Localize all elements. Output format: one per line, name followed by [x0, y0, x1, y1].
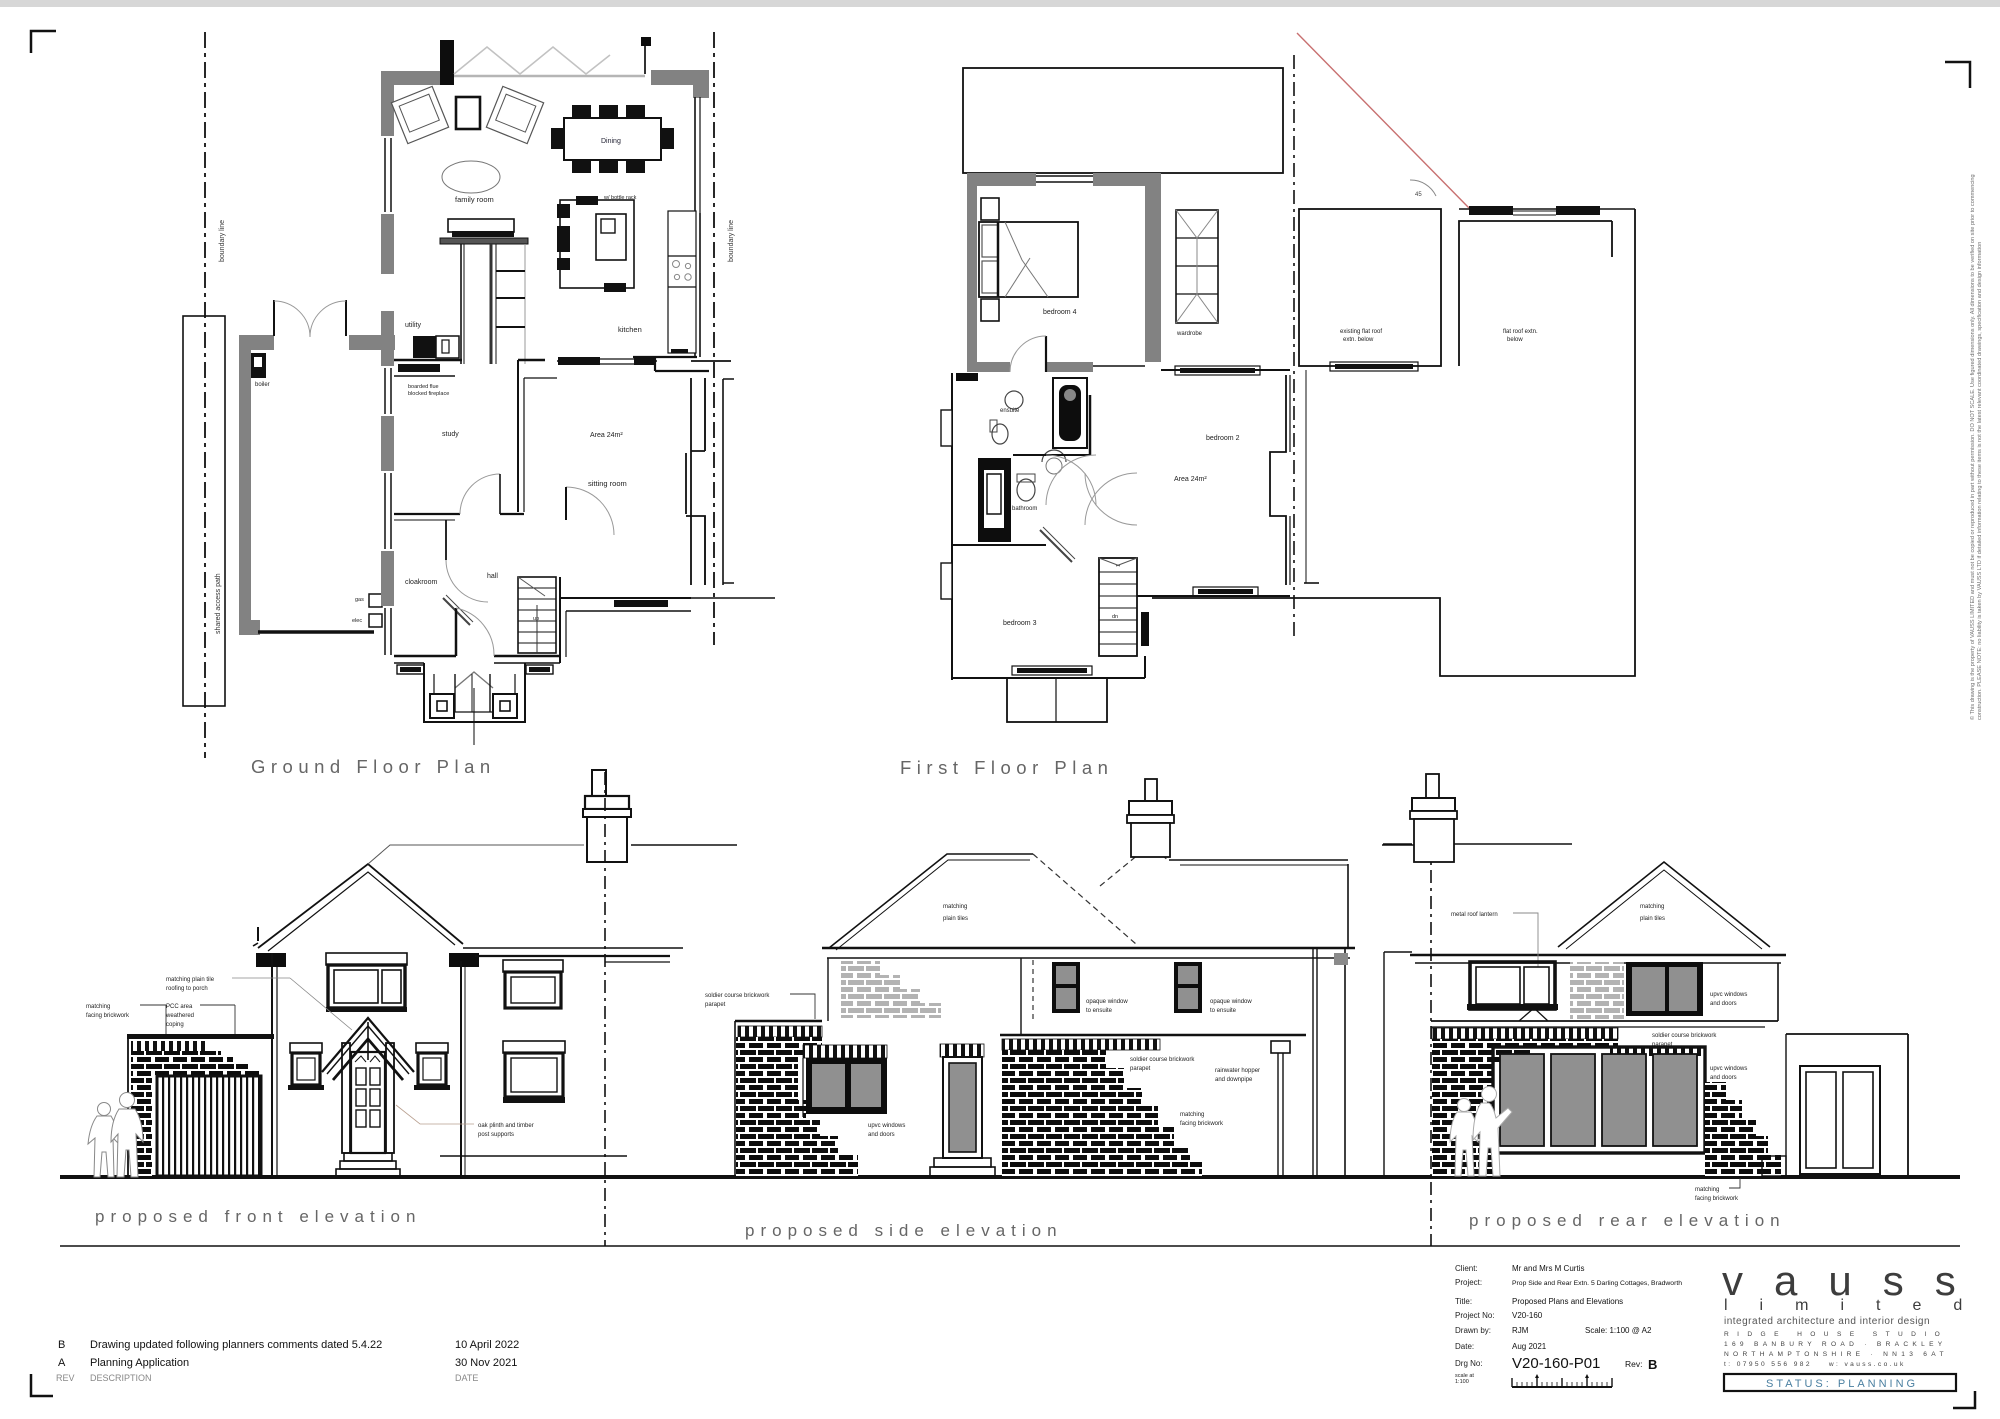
- svg-text:and doors: and doors: [1710, 1075, 1737, 1081]
- svg-text:upvc windows: upvc windows: [868, 1123, 905, 1129]
- svg-text:metal roof lantern: metal roof lantern: [1451, 912, 1498, 918]
- svg-text:matching: matching: [1695, 1187, 1719, 1193]
- svg-text:rainwater hopper: rainwater hopper: [1215, 1068, 1260, 1074]
- svg-text:opaque window: opaque window: [1086, 999, 1128, 1005]
- svg-text:and doors: and doors: [868, 1132, 895, 1138]
- svg-text:plain tiles: plain tiles: [943, 916, 968, 922]
- svg-text:roofing to porch: roofing to porch: [166, 986, 208, 992]
- svg-text:matching plain tile: matching plain tile: [166, 977, 215, 983]
- svg-text:A: A: [58, 1357, 66, 1369]
- svg-text:matching: matching: [943, 904, 967, 910]
- svg-text:hall: hall: [487, 573, 498, 580]
- svg-text:construction. PLEASE NOTE: no: construction. PLEASE NOTE: no liability …: [1977, 242, 1983, 720]
- svg-text:soldier course brickwork: soldier course brickwork: [1130, 1057, 1195, 1063]
- svg-text:Drawing updated following plan: Drawing updated following planners comme…: [90, 1339, 382, 1351]
- svg-text:proposed side elevation: proposed side elevation: [745, 1221, 1063, 1240]
- svg-text:shared access path: shared access path: [215, 573, 222, 634]
- svg-text:parapet: parapet: [1130, 1066, 1151, 1072]
- svg-text:Dining: Dining: [601, 138, 621, 145]
- svg-text:t: 07950 556 982 w: vauss.c: t: 07950 556 982 w: vauss.co.uk: [1724, 1361, 1906, 1368]
- svg-text:limited: limited: [1724, 1297, 1994, 1314]
- svg-text:Project:: Project:: [1455, 1278, 1482, 1287]
- svg-text:below: below: [1507, 337, 1523, 343]
- svg-text:soldier course brickwork: soldier course brickwork: [1652, 1033, 1717, 1039]
- svg-text:to ensuite: to ensuite: [1210, 1008, 1237, 1014]
- svg-text:w/ bottle rack: w/ bottle rack: [603, 195, 637, 201]
- svg-text:family room: family room: [455, 195, 494, 204]
- svg-text:Rev:: Rev:: [1625, 1359, 1642, 1369]
- svg-text:dn: dn: [1112, 614, 1118, 620]
- svg-text:REV: REV: [56, 1373, 75, 1383]
- svg-text:bedroom 3: bedroom 3: [1003, 620, 1037, 627]
- svg-text:Prop Side and Rear Extn. 5 Dar: Prop Side and Rear Extn. 5 Darling Cotta…: [1512, 1280, 1682, 1287]
- svg-text:B: B: [1648, 1357, 1657, 1372]
- svg-text:oak plinth and timber: oak plinth and timber: [478, 1123, 534, 1129]
- svg-text:B: B: [58, 1339, 65, 1351]
- svg-text:up: up: [533, 616, 539, 622]
- svg-text:ensuite: ensuite: [1000, 408, 1020, 414]
- svg-text:Mr and Mrs M Curtis: Mr and Mrs M Curtis: [1512, 1264, 1584, 1273]
- svg-text:boiler: boiler: [255, 382, 270, 388]
- svg-text:NORTHAMPTONSHIRE · NN13 6AT: NORTHAMPTONSHIRE · NN13 6AT: [1724, 1351, 1948, 1358]
- svg-text:bathroom: bathroom: [1012, 506, 1037, 512]
- svg-text:STATUS: PLANNING: STATUS: PLANNING: [1766, 1378, 1918, 1390]
- svg-text:proposed front elevation: proposed front elevation: [95, 1207, 421, 1226]
- svg-text:Drg No:: Drg No:: [1455, 1359, 1483, 1368]
- svg-text:and downpipe: and downpipe: [1215, 1077, 1253, 1083]
- svg-text:facing brickwork: facing brickwork: [1180, 1121, 1224, 1127]
- svg-text:30 Nov 2021: 30 Nov 2021: [455, 1357, 517, 1369]
- svg-text:169 BANBURY ROAD · BRACKLEY: 169 BANBURY ROAD · BRACKLEY: [1724, 1341, 1947, 1348]
- svg-text:© This drawing is the property: © This drawing is the property of VAUSS …: [1969, 174, 1976, 720]
- svg-text:RIDGE HOUSE STUDIO: RIDGE HOUSE STUDIO: [1724, 1331, 1948, 1338]
- svg-text:Client:: Client:: [1455, 1264, 1478, 1273]
- svg-text:Drawn by:: Drawn by:: [1455, 1326, 1491, 1335]
- svg-text:PCC area: PCC area: [166, 1004, 193, 1010]
- svg-text:boundary line: boundary line: [728, 220, 735, 262]
- svg-text:elec: elec: [352, 618, 362, 624]
- svg-text:RJM: RJM: [1512, 1326, 1529, 1335]
- svg-text:bedroom 4: bedroom 4: [1043, 309, 1077, 316]
- svg-text:matching: matching: [1180, 1112, 1204, 1118]
- svg-text:parapet: parapet: [705, 1002, 726, 1008]
- svg-text:Proposed Plans and Elevations: Proposed Plans and Elevations: [1512, 1297, 1623, 1306]
- svg-text:soldier course brickwork: soldier course brickwork: [705, 993, 770, 999]
- svg-text:upvc windows: upvc windows: [1710, 1066, 1747, 1072]
- svg-text:gas: gas: [355, 597, 364, 603]
- svg-text:plain tiles: plain tiles: [1640, 916, 1665, 922]
- svg-text:to ensuite: to ensuite: [1086, 1008, 1113, 1014]
- svg-text:Area 24m²: Area 24m²: [590, 432, 623, 439]
- svg-text:DESCRIPTION: DESCRIPTION: [90, 1373, 152, 1383]
- svg-text:1:100: 1:100: [1455, 1379, 1469, 1385]
- svg-text:matching: matching: [86, 1004, 110, 1010]
- svg-text:blocked fireplace: blocked fireplace: [408, 391, 449, 397]
- svg-text:V20-160-P01: V20-160-P01: [1512, 1355, 1600, 1372]
- svg-text:Area 24m²: Area 24m²: [1174, 476, 1207, 483]
- svg-text:bedroom 2: bedroom 2: [1206, 435, 1240, 442]
- svg-text:Scale: 1:100 @ A2: Scale: 1:100 @ A2: [1585, 1326, 1652, 1335]
- svg-text:opaque window: opaque window: [1210, 999, 1252, 1005]
- svg-text:cloakroom: cloakroom: [405, 579, 437, 586]
- svg-text:10 April 2022: 10 April 2022: [455, 1339, 519, 1351]
- svg-text:facing brickwork: facing brickwork: [1695, 1196, 1739, 1202]
- svg-text:weathered: weathered: [165, 1013, 194, 1019]
- svg-text:DATE: DATE: [455, 1373, 478, 1383]
- svg-text:kitchen: kitchen: [618, 325, 642, 334]
- svg-text:First Floor Plan: First Floor Plan: [900, 757, 1113, 778]
- svg-text:utility: utility: [405, 322, 421, 329]
- svg-text:study: study: [442, 431, 459, 438]
- svg-text:proposed rear elevation: proposed rear elevation: [1469, 1211, 1786, 1230]
- svg-text:V20-160: V20-160: [1512, 1311, 1543, 1320]
- svg-text:wardrobe: wardrobe: [1176, 331, 1203, 337]
- svg-text:Ground Floor Plan: Ground Floor Plan: [251, 756, 496, 777]
- svg-text:Aug 2021: Aug 2021: [1512, 1342, 1547, 1351]
- svg-text:Title:: Title:: [1455, 1297, 1472, 1306]
- svg-text:extn. below: extn. below: [1343, 337, 1374, 343]
- svg-text:flat roof extn.: flat roof extn.: [1503, 329, 1538, 335]
- svg-text:post supports: post supports: [478, 1132, 514, 1138]
- svg-text:and doors: and doors: [1710, 1001, 1737, 1007]
- svg-text:existing flat roof: existing flat roof: [1340, 329, 1382, 335]
- svg-text:facing brickwork: facing brickwork: [86, 1013, 130, 1019]
- svg-text:boarded flue: boarded flue: [408, 384, 439, 390]
- svg-text:45: 45: [1415, 192, 1422, 198]
- svg-text:Planning Application: Planning Application: [90, 1357, 189, 1369]
- svg-text:coping: coping: [166, 1022, 184, 1028]
- svg-text:integrated architecture and in: integrated architecture and interior des…: [1724, 1316, 1930, 1327]
- svg-text:matching: matching: [1640, 904, 1664, 910]
- svg-text:Date:: Date:: [1455, 1342, 1474, 1351]
- svg-text:upvc windows: upvc windows: [1710, 992, 1747, 998]
- svg-text:boundary line: boundary line: [219, 220, 226, 262]
- svg-text:Project No:: Project No:: [1455, 1311, 1495, 1320]
- svg-text:sitting room: sitting room: [588, 479, 627, 488]
